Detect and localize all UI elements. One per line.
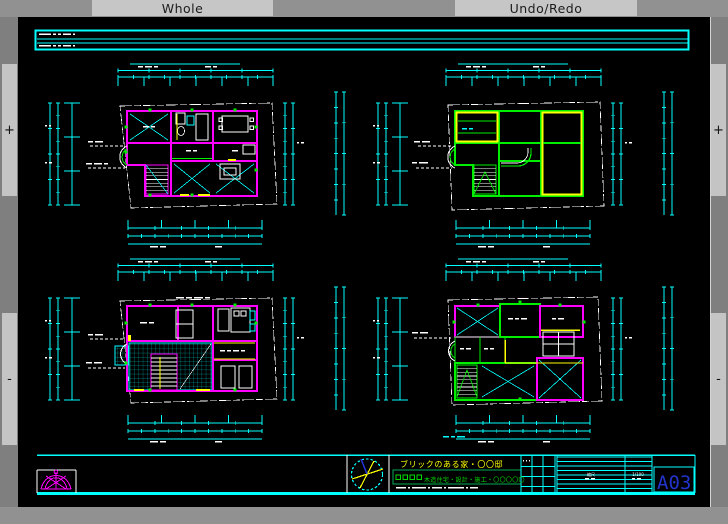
- scale-value: 1/100: [632, 472, 644, 477]
- sheet-number: A03: [657, 472, 691, 494]
- whole-view-button[interactable]: Whole: [92, 0, 273, 16]
- spec-line: 木造住宅・設計・施工・〇〇〇〇〇: [424, 476, 525, 484]
- cad-application-window: Whole Undo/Redo + - + - ブリックのある家・〇〇邸 木造住…: [0, 0, 728, 524]
- cad-sheet: ブリックのある家・〇〇邸 木造住宅・設計・施工・〇〇〇〇〇 縮尺 1/100 A…: [18, 17, 710, 507]
- drawing-canvas[interactable]: ブリックのある家・〇〇邸 木造住宅・設計・施工・〇〇〇〇〇 縮尺 1/100 A…: [18, 17, 710, 507]
- zoom-in-button-right[interactable]: +: [711, 64, 726, 196]
- strip-highlight: [710, 17, 711, 507]
- drawing-geometry: [36, 31, 696, 494]
- undo-redo-button[interactable]: Undo/Redo: [455, 0, 637, 16]
- top-toolbar: Whole Undo/Redo: [0, 0, 728, 17]
- project-title: ブリックのある家・〇〇邸: [400, 459, 503, 469]
- zoom-in-button-left[interactable]: +: [2, 64, 17, 196]
- zoom-out-button-right[interactable]: -: [711, 313, 726, 445]
- bottom-toolbar: Color Help: [0, 507, 728, 524]
- scale-label: 縮尺: [587, 471, 595, 477]
- zoom-out-button-left[interactable]: -: [2, 313, 17, 445]
